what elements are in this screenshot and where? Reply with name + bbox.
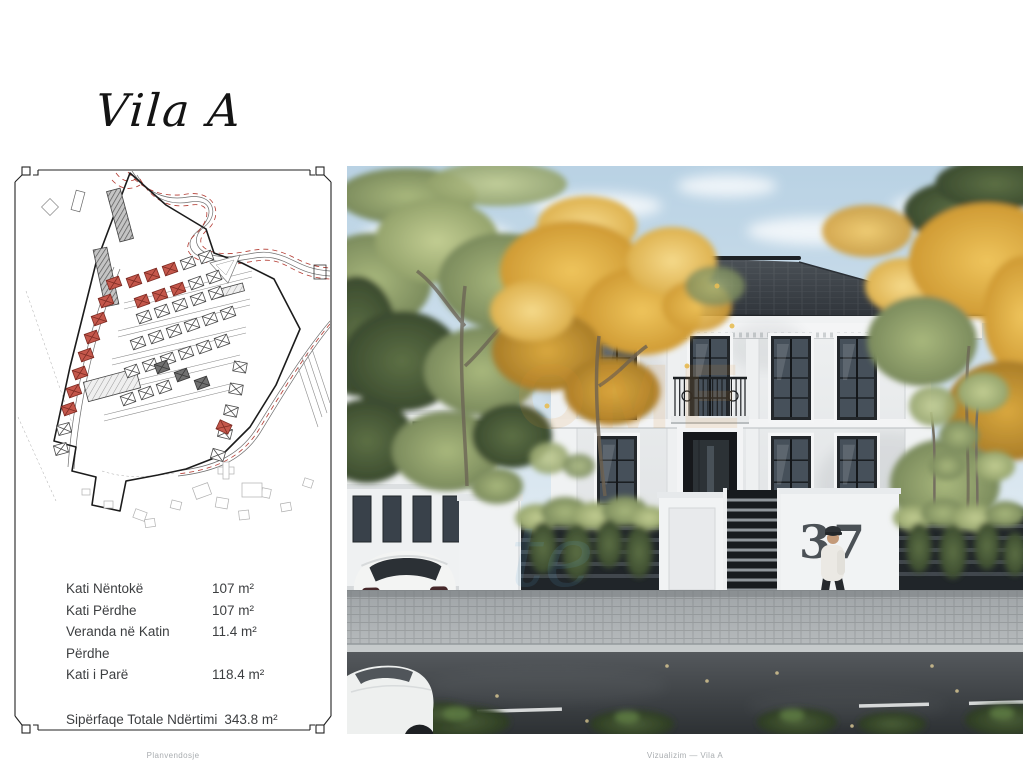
area-total-value: 343.8 m² [224,709,277,731]
area-row: Kati i Parë 118.4 m² [66,664,328,686]
area-value: 118.4 m² [212,664,264,686]
area-label: Veranda në Katin Përdhe [66,621,212,664]
svg-text:OME: OME [515,346,749,448]
area-row: Kati Përdhe 107 m² [66,600,328,622]
area-total-row: Sipërfaqe Totale Ndërtimi 343.8 m² [66,709,328,731]
area-row: Kati Nëntokë 107 m² [66,578,328,600]
foreground-car [347,666,433,734]
area-value: 107 m² [212,600,254,622]
page-title: Vila A [94,84,244,137]
caption-vizualizim: Vizualizim — Vila A [347,751,1023,760]
gate-pier [657,492,727,596]
caption-planvendosje: Planvendosje [12,751,334,760]
area-schedule: Kati Nëntokë 107 m² Kati Përdhe 107 m² V… [66,578,328,730]
map-neighbours [82,462,314,528]
villa-photo: 37 [347,166,1023,734]
map-roads [68,171,330,476]
area-total-label: Sipërfaqe Totale Ndërtimi [66,709,217,731]
area-row: Veranda në Katin Përdhe 11.4 m² [66,621,328,664]
site-plan-map [16,171,330,563]
area-value: 107 m² [212,578,254,600]
area-label: Kati i Parë [66,664,212,686]
sidewalk [347,590,1023,653]
area-label: Kati Përdhe [66,600,212,622]
area-label: Kati Nëntokë [66,578,212,600]
entrance-gate [723,488,781,596]
site-plan-panel: Kati Nëntokë 107 m² Kati Përdhe 107 m² V… [12,164,334,736]
area-value: 11.4 m² [212,621,257,664]
svg-text:te: te [510,508,593,606]
